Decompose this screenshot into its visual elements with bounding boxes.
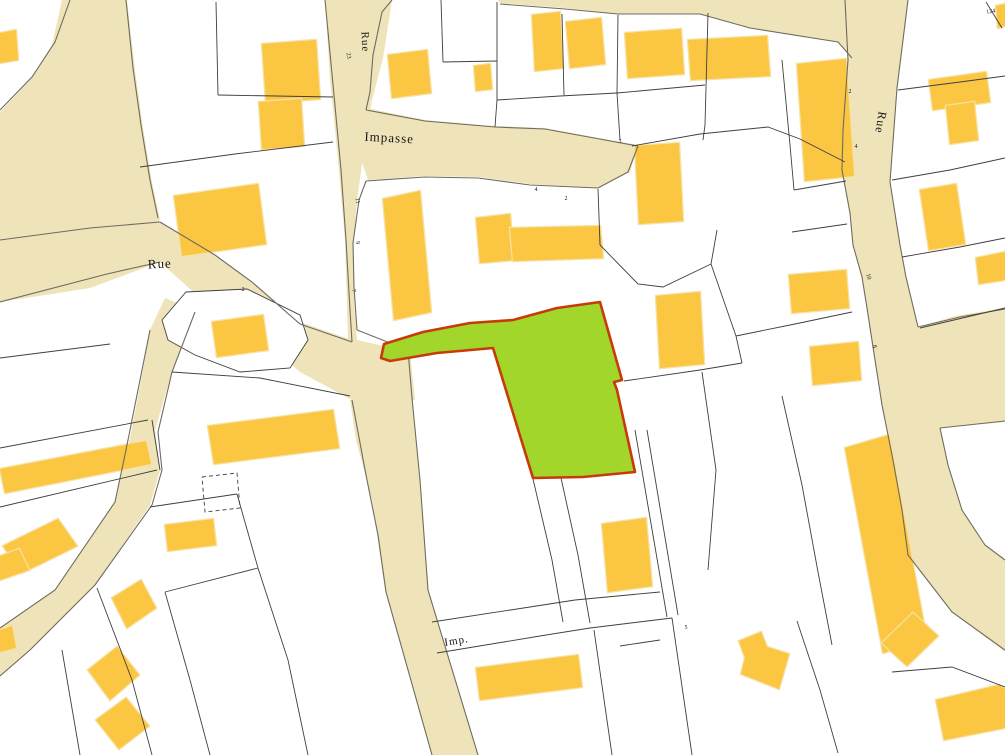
parcel-boundary-line	[165, 568, 258, 592]
building	[0, 30, 18, 63]
parcel-boundary-line	[62, 650, 80, 755]
building	[88, 647, 139, 700]
building	[625, 29, 684, 78]
parcel-boundary-line	[140, 142, 333, 167]
parcel-boundary-line	[892, 158, 1005, 180]
road-name-label: Impasse	[364, 129, 414, 147]
building	[96, 698, 149, 749]
building	[212, 315, 268, 357]
selected-parcel[interactable]	[381, 302, 635, 478]
parcel-boundary-line	[216, 2, 218, 95]
building	[635, 143, 683, 224]
parcel-boundary-line	[617, 15, 620, 140]
parcel-boundary-line	[437, 618, 672, 653]
parcel-boundary-line	[711, 230, 736, 336]
road-impasse	[358, 108, 638, 188]
building	[797, 59, 854, 181]
building	[688, 36, 770, 80]
building	[510, 226, 603, 261]
road-south	[350, 398, 478, 755]
parcel-boundary-line	[702, 372, 716, 570]
building	[112, 580, 156, 628]
parcel-number-label: 2	[242, 287, 245, 293]
building	[165, 519, 216, 551]
parcel-boundary-line	[892, 667, 1005, 687]
parcel-number-label: 23	[345, 52, 352, 59]
parcel-number-label: 9	[354, 241, 360, 245]
building	[208, 410, 339, 464]
parcel-boundary-line	[258, 568, 308, 755]
parcel-number-label: 4	[535, 187, 538, 193]
building	[996, 4, 1005, 28]
building	[810, 342, 861, 385]
parcel-number-label: 2	[565, 196, 568, 202]
building	[383, 191, 431, 320]
parcel-boundary-line	[441, 0, 443, 62]
parcel-boundary-line	[443, 61, 497, 62]
building	[566, 18, 605, 68]
parcel-boundary-line	[0, 344, 110, 358]
building	[259, 99, 304, 149]
parcel-boundary-line	[782, 396, 832, 645]
dashed-building-outline	[202, 473, 240, 512]
parcel-boundary-line	[672, 618, 692, 755]
parcel-boundary-line	[533, 479, 563, 622]
parcel-boundary-line	[792, 224, 847, 232]
building	[920, 184, 965, 250]
building	[789, 270, 849, 313]
parcel-number-label: 2	[849, 89, 852, 95]
building	[976, 252, 1005, 284]
road-name-label: Imp.	[444, 633, 470, 649]
parcel-boundary-line	[617, 85, 705, 93]
parcel-boundary-line	[736, 312, 852, 336]
parcel-boundary-line	[782, 60, 794, 190]
building	[474, 64, 492, 91]
building	[0, 626, 16, 652]
parcel-number-label: 3	[619, 139, 622, 145]
parcel-number-label: 7	[350, 289, 356, 293]
building	[174, 184, 266, 256]
map-canvas[interactable]: RueImpasseRueRueImp.2421197232410812435	[0, 0, 1005, 755]
road-name-label: Rue	[359, 31, 372, 52]
building	[602, 518, 652, 592]
building	[476, 214, 514, 263]
parcel-boundary-line	[165, 592, 210, 755]
parcel-boundary-line	[432, 592, 660, 622]
parcel-boundary-line	[797, 621, 838, 753]
parcel-boundary-line	[497, 93, 617, 100]
parcel-number-label: 4	[855, 144, 858, 150]
building	[739, 632, 789, 689]
parcel-number-label: 124	[986, 8, 996, 15]
building	[946, 102, 978, 144]
building	[262, 40, 320, 103]
building	[476, 655, 582, 700]
road-name-label: Rue	[147, 255, 172, 271]
parcel-boundary-line	[736, 336, 742, 363]
cadastral-map[interactable]: RueImpasseRueRueImp.2421197232410812435	[0, 0, 1005, 755]
parcel-boundary-line	[150, 494, 237, 507]
parcel-boundary-line	[794, 181, 846, 190]
building	[936, 685, 1005, 740]
parcel-number-label: 5	[685, 625, 688, 631]
building	[656, 292, 704, 368]
building	[532, 12, 563, 71]
parcel-boundary-line	[594, 630, 612, 755]
parcel-boundary-line	[495, 2, 497, 127]
parcel-boundary-line	[237, 494, 258, 568]
parcel-boundary-line	[620, 640, 660, 646]
parcel-boundary-line	[600, 245, 711, 287]
parcel-number-label: 11	[354, 197, 361, 204]
building	[388, 50, 431, 98]
